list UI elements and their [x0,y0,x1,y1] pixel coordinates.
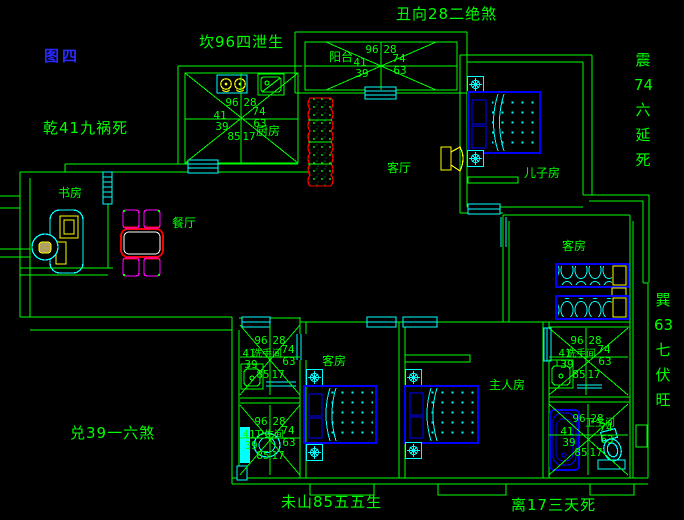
window-master [403,317,437,327]
annotation-top: 丑向28二绝煞 [396,6,497,22]
svg-text:85: 85 [256,449,269,462]
svg-text:63: 63 [393,64,406,77]
room-label-toilet-left: 卫生间 [254,430,284,441]
room-label-guest-right: 客房 [562,240,586,253]
window-study [103,172,112,204]
svg-text:85: 85 [256,368,269,381]
svg-text:96: 96 [254,334,267,347]
room-label-washroom-left: 洗手间 [252,349,282,360]
svg-text:85: 85 [572,368,585,381]
svg-text:17: 17 [271,368,284,381]
svg-text:63: 63 [600,433,613,446]
svg-text:17: 17 [589,446,602,459]
svg-text:96: 96 [225,96,238,109]
beds-guest-right [556,264,628,319]
room-label-living: 客厅 [387,162,411,175]
annotation-right-bottom: 巽 63 七 伏 旺 [654,288,672,413]
svg-text:39: 39 [355,67,368,80]
svg-text:17: 17 [271,449,284,462]
study-desk [32,210,83,273]
room-label-kitchen: 厨房 [256,125,280,138]
annotation-bottom-right: 离17三天死 [511,497,596,513]
room-label-dining: 餐厅 [172,217,196,230]
window-kitchen [188,160,218,173]
svg-text:96: 96 [365,43,378,56]
window-master-right [544,328,551,361]
sink-icon [258,74,284,95]
annotation-bottom-center: 未山85五五生 [281,494,382,510]
annotation-right-top: 震 74 六 延 死 [634,48,652,173]
svg-text:17: 17 [242,130,255,143]
room-label-guest-bottom: 客房 [322,355,346,368]
figure-label: 图四 [44,45,80,66]
svg-text:63: 63 [598,355,611,368]
svg-text:96: 96 [254,415,267,428]
room-label-toilet-right: 卫生间 [585,418,615,429]
dining-table [121,229,163,257]
room-label-washroom-right: 洗手间 [566,349,596,360]
svg-text:17: 17 [587,368,600,381]
planter [308,98,333,186]
compass-toilet-right: 9628417439638517 [549,404,628,475]
svg-text:85: 85 [227,130,240,143]
window-guest-bottom [367,317,396,327]
compass-balcony: 962841743963 [305,42,457,90]
annotation-top-left: 坎96四泄生 [199,34,284,50]
floorplan-drawing: 9628417439638517962841743963962841743963… [0,0,684,520]
master-shelf [405,355,470,362]
annotation-left: 乾41九祸死 [43,120,128,136]
stove-icon [217,75,247,93]
compass-kitchen: 9628417439638517 [185,73,298,163]
floorplan-canvas: 9628417439638517962841743963962841743963… [0,0,684,520]
son-room-desk [468,177,518,183]
door-guest-bottom [297,334,301,360]
bed-guest-bottom [304,370,376,461]
room-label-son-room: 儿子房 [524,167,560,180]
room-label-study: 书房 [58,187,82,200]
svg-text:96: 96 [570,334,583,347]
svg-text:96: 96 [572,412,585,425]
room-label-master: 主人房 [489,379,525,392]
room-label-balcony: 阳台 [329,51,353,64]
window-washroom-left [242,317,270,327]
window-son-room [468,204,500,214]
bath-mat [598,460,625,469]
compass-washroom-left: 9628417439638517 [240,325,300,395]
svg-text:63: 63 [282,436,295,449]
svg-text:63: 63 [282,355,295,368]
svg-text:85: 85 [574,446,587,459]
annotation-bottom-left: 兑39一六煞 [70,425,155,441]
door-washroom-right [577,385,602,388]
bed-master [405,355,478,459]
